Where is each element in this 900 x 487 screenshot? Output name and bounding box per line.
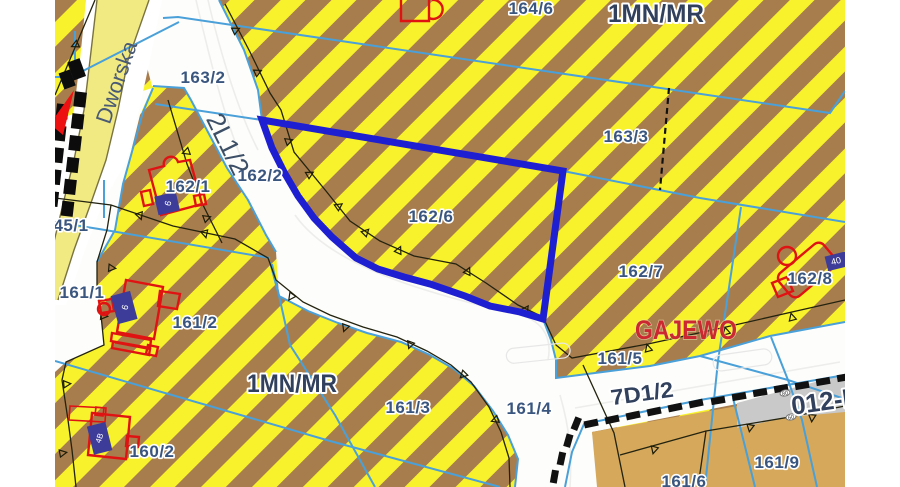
svg-text:GAJEWO: GAJEWO (635, 315, 737, 345)
svg-text:161/9: 161/9 (754, 453, 799, 472)
svg-text:161/5: 161/5 (597, 349, 642, 368)
svg-text:161/3: 161/3 (385, 398, 430, 417)
svg-text:161/2: 161/2 (172, 313, 217, 332)
svg-text:1MN/MR: 1MN/MR (608, 0, 704, 28)
svg-text:162/6: 162/6 (408, 207, 453, 226)
svg-text:163/2: 163/2 (180, 68, 225, 87)
svg-text:1MN/MR: 1MN/MR (247, 370, 337, 398)
svg-text:161/1: 161/1 (59, 283, 104, 302)
svg-text:160/2: 160/2 (129, 442, 174, 461)
svg-text:80: 80 (782, 390, 789, 397)
svg-text:162/1: 162/1 (165, 177, 210, 196)
svg-text:162/7: 162/7 (618, 262, 663, 281)
svg-text:162/8: 162/8 (787, 269, 832, 288)
svg-text:161/6: 161/6 (661, 472, 706, 487)
svg-text:164/6: 164/6 (508, 0, 553, 18)
svg-text:161/4: 161/4 (506, 399, 551, 418)
svg-text:163/3: 163/3 (603, 127, 648, 146)
svg-text:45/1: 45/1 (53, 216, 88, 235)
